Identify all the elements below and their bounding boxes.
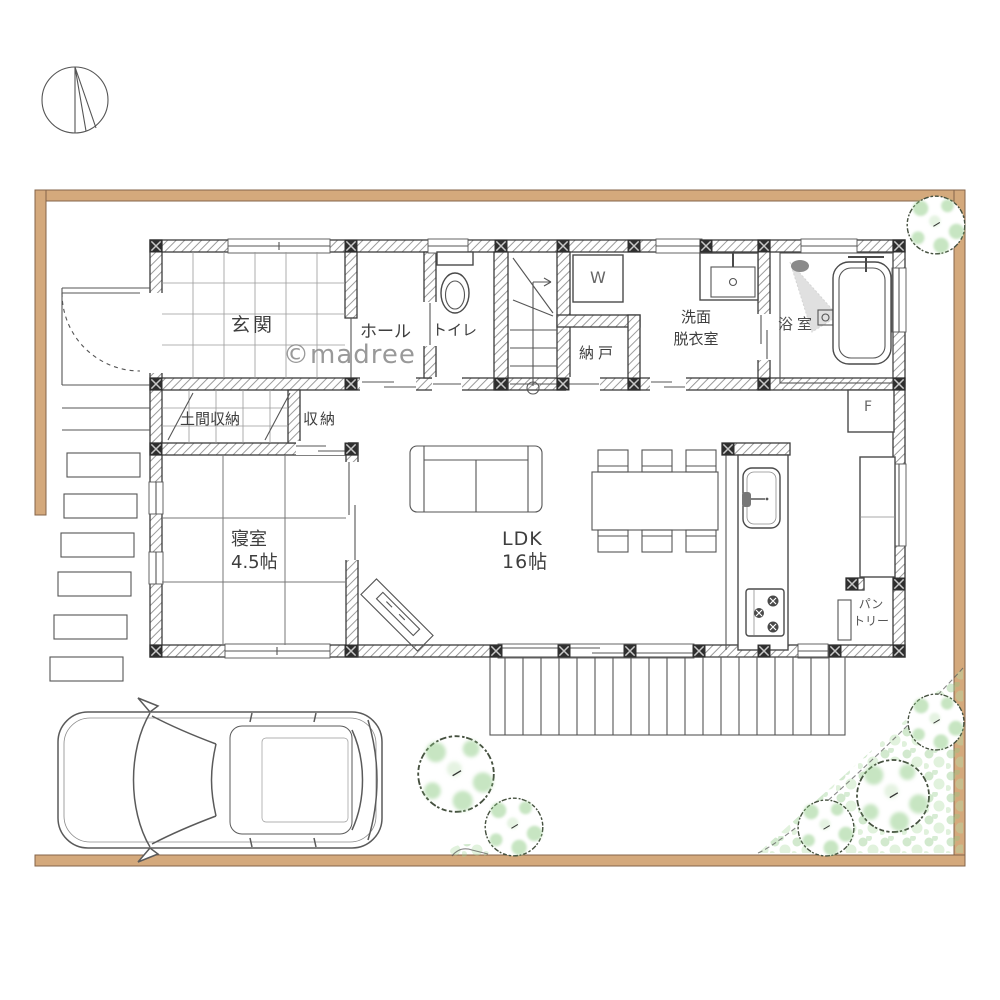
room-label-ldk-size: 16帖 (502, 551, 548, 574)
room-label-genkan: 玄関 (231, 310, 275, 337)
room-label-bath: 浴室 (778, 313, 816, 334)
dining-table-icon (592, 450, 718, 552)
tv-board-icon (361, 579, 433, 651)
sofa-icon (410, 446, 542, 512)
bathtub-icon (833, 257, 891, 364)
room-label-ldk-name: LDK (502, 528, 548, 551)
staircase (510, 258, 557, 394)
tree-icon (857, 760, 929, 832)
room-label-toilet: トイレ (432, 319, 477, 340)
stepping-stones (50, 453, 140, 681)
fridge-label: F (864, 399, 872, 415)
room-label-pantry-line1: パン (845, 596, 897, 613)
entrance-porch (62, 288, 150, 430)
tree-icon (907, 196, 965, 254)
washbasin-icon (700, 253, 758, 300)
toilet-icon (437, 252, 473, 313)
tree-icon (418, 736, 494, 812)
car-icon (58, 698, 382, 862)
room-label-washroom-line2: 脱衣室 (652, 328, 740, 350)
stove-icon (746, 589, 784, 636)
room-label-pantry: パン トリー (845, 596, 897, 630)
tree-icon (908, 694, 964, 750)
room-label-nando: 納戸 (579, 342, 617, 363)
room-label-bedroom-size: 4.5帖 (231, 551, 278, 574)
back-counter (860, 457, 895, 577)
room-label-ldk: LDK 16帖 (502, 528, 548, 574)
room-label-washroom-line1: 洗面 (652, 306, 740, 328)
tree-icon (485, 798, 543, 856)
room-label-bedroom-name: 寝室 (231, 528, 278, 551)
washer-label: W (590, 268, 606, 287)
shower-head-icon (791, 260, 809, 272)
room-label-hall: ホール (360, 317, 411, 342)
room-label-doma-storage: 土間収納 (180, 408, 240, 429)
tree-icon (798, 800, 854, 856)
floor-plan-canvas: 玄関 ホール トイレ W 納戸 洗面 脱衣室 浴室 土間収納 収納 寝室 4.5… (0, 0, 1000, 1000)
kitchen-counter (726, 443, 788, 650)
kitchen-sink-icon (742, 468, 780, 528)
floor-plan-drawing (0, 0, 1000, 1000)
north-compass-icon (42, 67, 108, 133)
watermark: ©madree (283, 340, 416, 370)
room-label-washroom: 洗面 脱衣室 (652, 306, 740, 350)
room-label-pantry-line2: トリー (845, 613, 897, 630)
room-label-closet: 収納 (303, 408, 337, 429)
room-label-bedroom: 寝室 4.5帖 (231, 528, 278, 574)
wood-deck (490, 657, 845, 735)
